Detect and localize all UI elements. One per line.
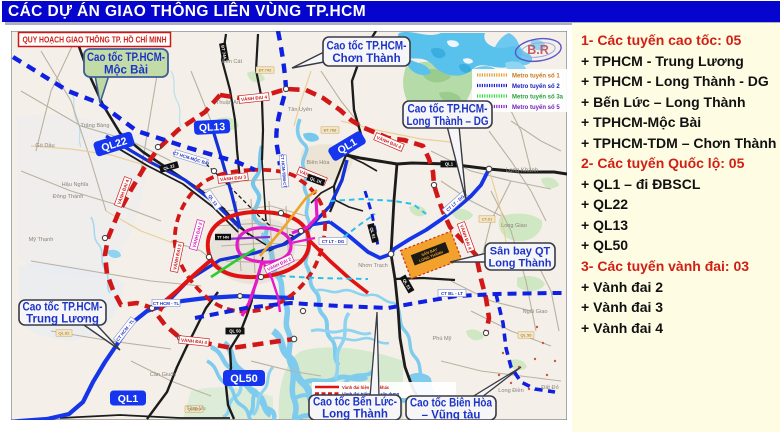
svg-text:Đông Thành: Đông Thành — [53, 194, 84, 200]
svg-text:Trảng Bàng: Trảng Bàng — [80, 123, 109, 129]
svg-text:Long Thành: Long Thành — [489, 258, 552, 270]
svg-text:Cao tốc TP.HCM-: Cao tốc TP.HCM- — [327, 41, 407, 53]
svg-text:Mộc Bài: Mộc Bài — [104, 65, 148, 77]
svg-text:Metro tuyến số 5: Metro tuyến số 5 — [512, 104, 560, 111]
svg-text:Ngãi Giao: Ngãi Giao — [523, 309, 548, 315]
svg-text:Metro tuyến số 3a: Metro tuyến số 3a — [512, 93, 564, 100]
svg-text:QL1: QL1 — [445, 162, 454, 167]
svg-text:QL50: QL50 — [230, 373, 258, 385]
svg-text:Phú Mỹ: Phú Mỹ — [433, 336, 452, 342]
svg-text:QUY HOẠCH GIAO THÔNG TP. HỒ CH: QUY HOẠCH GIAO THÔNG TP. HỒ CHÍ MINH — [23, 34, 167, 45]
svg-text:Cao tốc Bến Lức-: Cao tốc Bến Lức- — [313, 397, 397, 409]
svg-text:Long Thành: Long Thành — [322, 409, 388, 421]
svg-text:Long Khánh: Long Khánh — [506, 168, 538, 174]
svg-text:Đất Đỏ: Đất Đỏ — [541, 384, 558, 391]
svg-text:QL1: QL1 — [118, 393, 139, 405]
svg-text:QL.62: QL.62 — [59, 331, 71, 336]
svg-text:Cần Giuộc: Cần Giuộc — [150, 372, 177, 378]
svg-text:Hậu Nghĩa: Hậu Nghĩa — [62, 182, 90, 188]
svg-text:Sân bay QT: Sân bay QT — [490, 246, 551, 258]
svg-text:Long Giao: Long Giao — [501, 223, 527, 229]
svg-text:QL 50: QL 50 — [229, 329, 241, 334]
svg-text:CT BL - LT: CT BL - LT — [441, 291, 463, 296]
svg-text:Cao tốc TP.HCM-: Cao tốc TP.HCM- — [408, 104, 488, 116]
svg-text:CT LT - DG: CT LT - DG — [322, 239, 345, 244]
svg-text:Thuận An: Thuận An — [216, 100, 240, 106]
svg-text:Mỹ Thạnh: Mỹ Thạnh — [29, 237, 54, 243]
svg-text:B.R: B.R — [527, 43, 549, 57]
svg-text:Gò Dầu: Gò Dầu — [35, 143, 54, 149]
svg-text:Tân Uyên: Tân Uyên — [288, 107, 312, 113]
svg-text:Long Điền: Long Điền — [498, 388, 524, 394]
svg-text:QL.56: QL.56 — [521, 333, 533, 338]
svg-text:Vành đai hiện hữu khác: Vành đai hiện hữu khác — [342, 385, 390, 390]
svg-text:CT HCM - TL: CT HCM - TL — [153, 301, 180, 306]
svg-text:QL13: QL13 — [199, 121, 226, 134]
svg-text:– Vũng tàu: – Vũng tàu — [422, 410, 481, 421]
svg-text:Trung Lương: Trung Lương — [26, 314, 99, 326]
svg-text:ĐT.768: ĐT.768 — [324, 128, 337, 133]
svg-text:Tầm Vu: Tầm Vu — [186, 406, 205, 412]
svg-text:Metro tuyến số 1: Metro tuyến số 1 — [512, 72, 560, 79]
svg-text:Metro tuyến số 2: Metro tuyến số 2 — [512, 83, 560, 90]
svg-text:Long Thành – DG: Long Thành – DG — [407, 116, 489, 128]
svg-text:Biên Hòa: Biên Hòa — [306, 160, 330, 166]
svg-text:TT HN: TT HN — [217, 235, 229, 240]
svg-text:Chơn Thành: Chơn Thành — [332, 53, 400, 65]
svg-text:Nhơn Trạch: Nhơn Trạch — [358, 263, 387, 269]
svg-text:Cao tốc TP.HCM-: Cao tốc TP.HCM- — [87, 52, 165, 64]
svg-text:Cao tốc Biên Hòa: Cao tốc Biên Hòa — [410, 398, 493, 410]
svg-text:CT.01: CT.01 — [482, 217, 493, 222]
svg-text:Bến Cát: Bến Cát — [222, 59, 243, 65]
svg-text:ĐT.742: ĐT.742 — [259, 68, 272, 73]
svg-text:Cao tốc TP.HCM-: Cao tốc TP.HCM- — [23, 302, 103, 314]
